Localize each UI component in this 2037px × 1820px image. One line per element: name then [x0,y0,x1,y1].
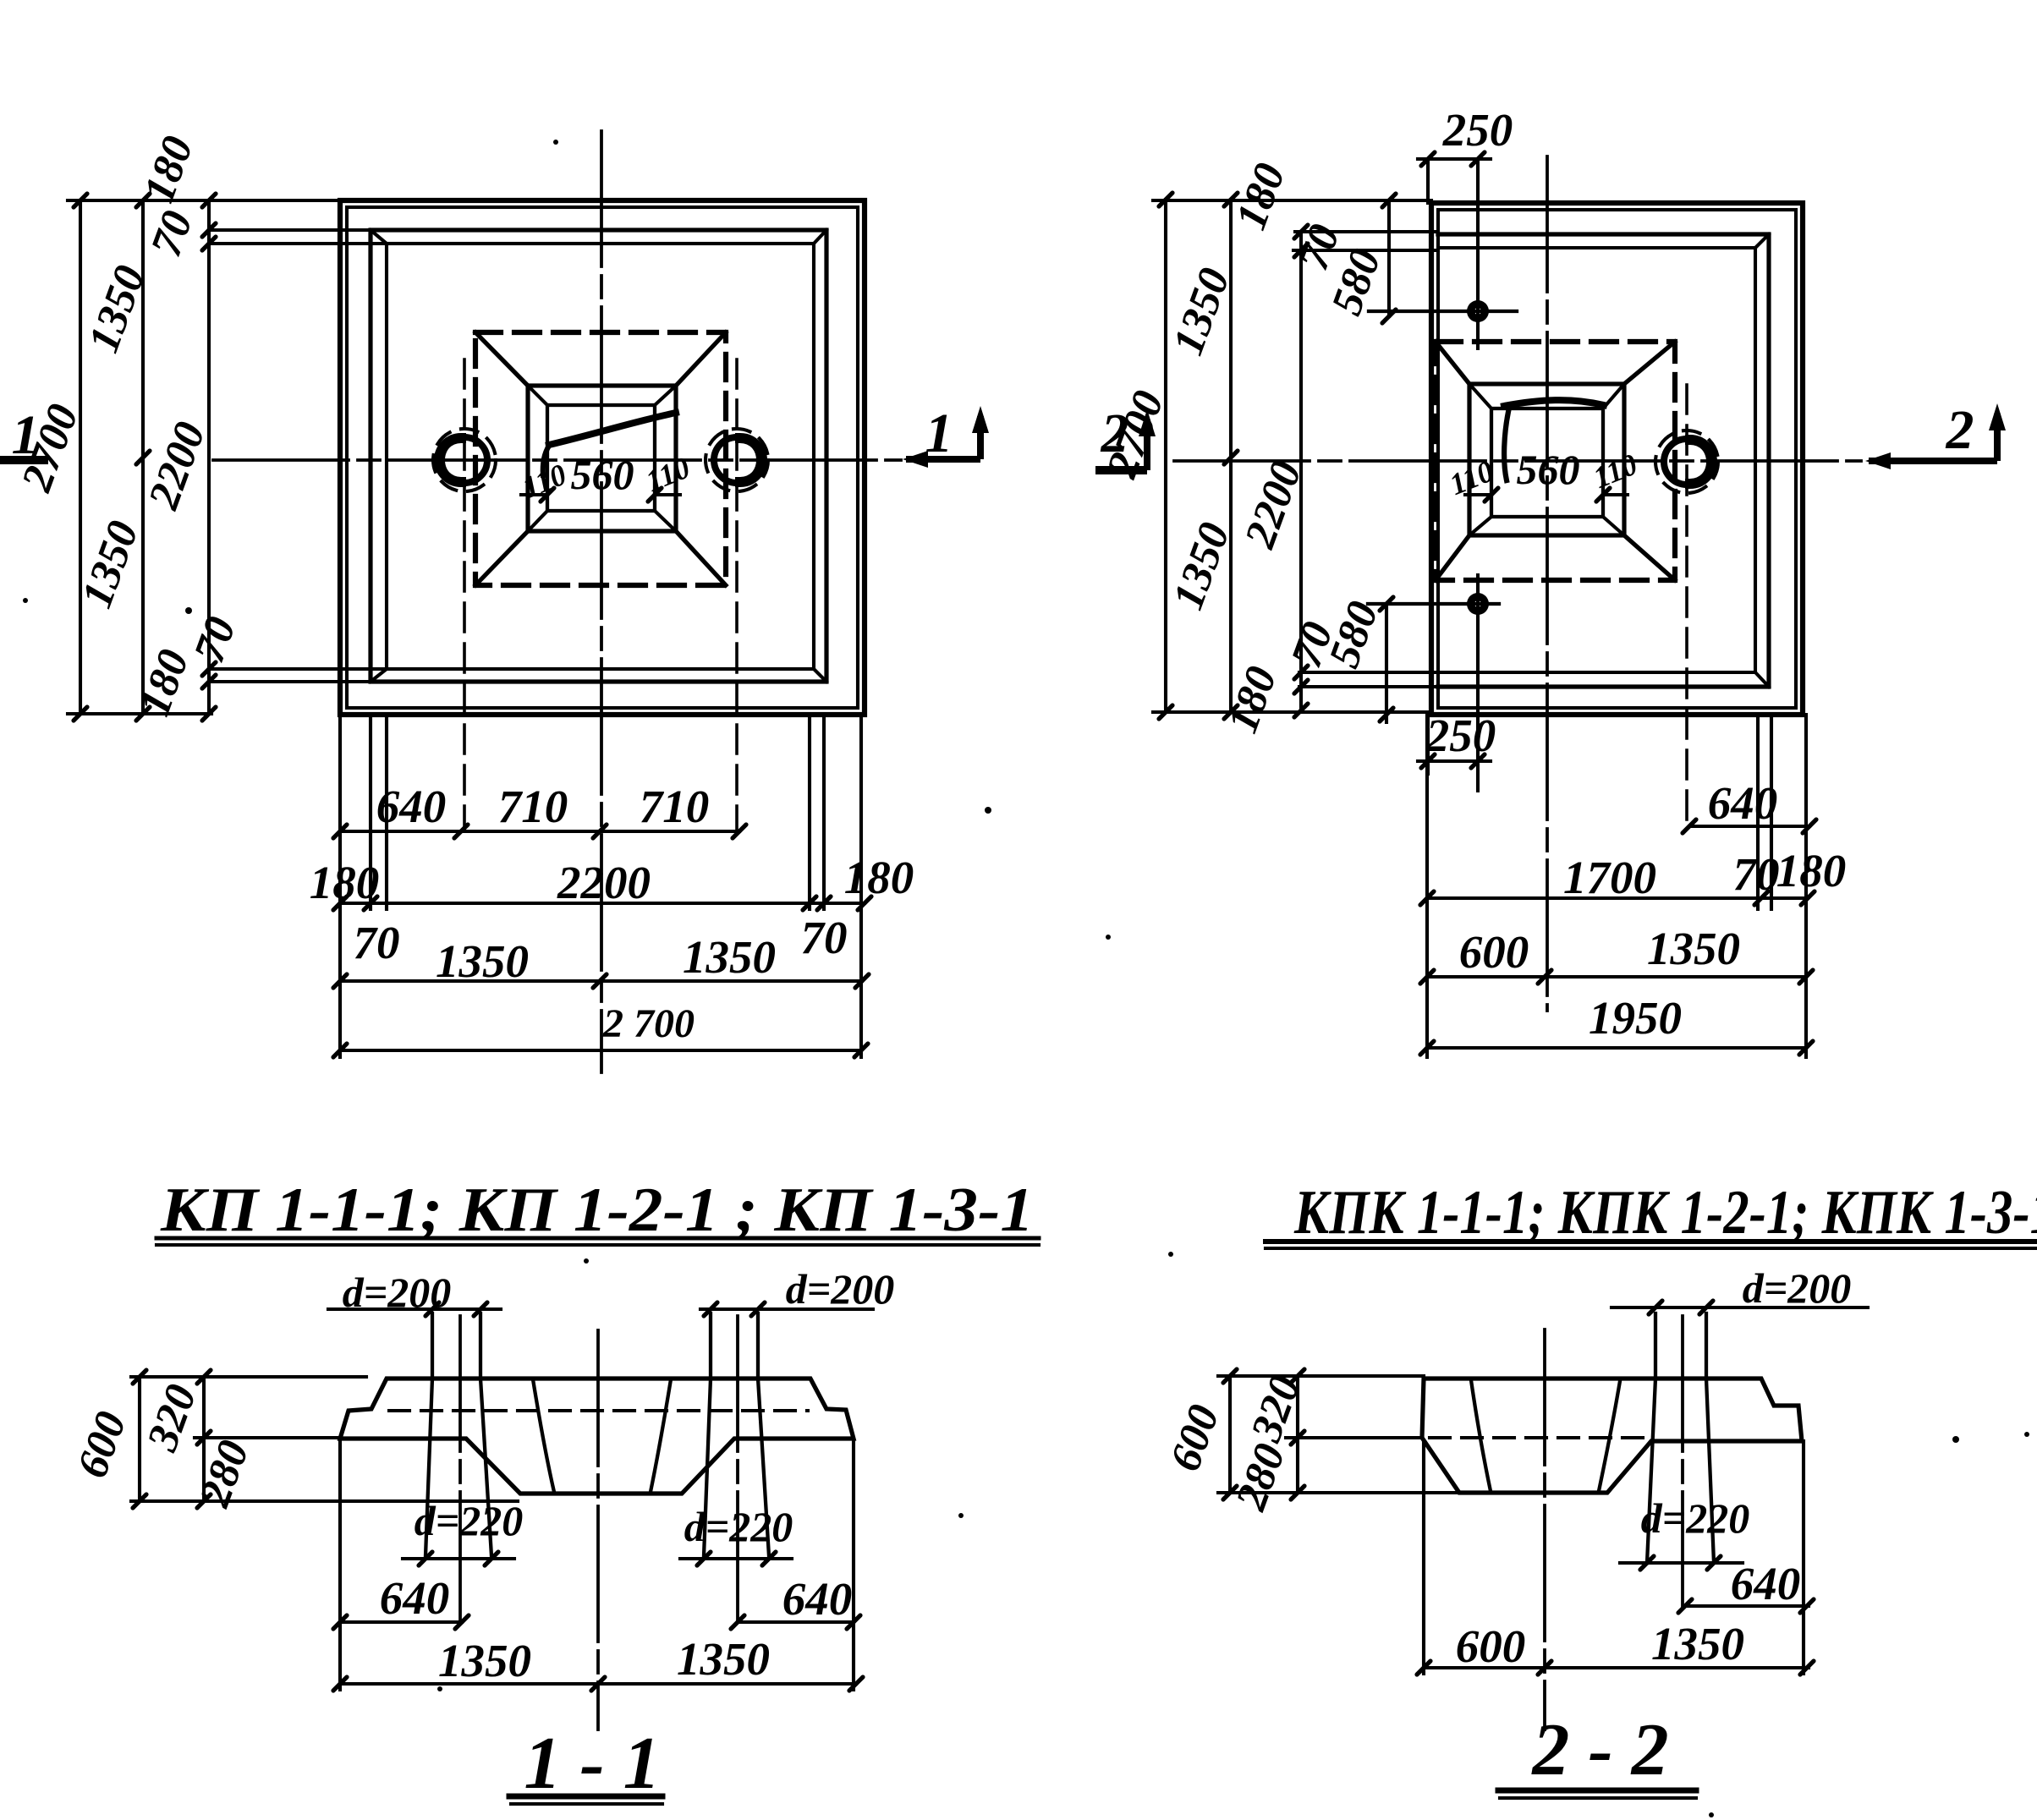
svg-text:70: 70 [1733,848,1780,900]
svg-text:600: 600 [1456,1620,1526,1672]
svg-text:560: 560 [571,451,634,498]
svg-text:2: 2 [1101,403,1129,464]
svg-text:180: 180 [310,857,380,908]
svg-text:250: 250 [1425,710,1496,761]
svg-text:710: 710 [498,781,568,832]
svg-text:710: 710 [640,781,710,832]
svg-text:d=220: d=220 [415,1497,524,1544]
svg-text:d=220: d=220 [1641,1494,1750,1542]
svg-text:1 - 1: 1 - 1 [524,1723,660,1805]
svg-text:600: 600 [1459,926,1529,978]
svg-text:640: 640 [1708,777,1778,829]
svg-text:1700: 1700 [1563,852,1656,903]
svg-text:70: 70 [801,912,848,963]
svg-text:640: 640 [380,1572,450,1624]
svg-text:1350: 1350 [683,931,776,983]
svg-text:1350: 1350 [1647,923,1740,974]
svg-text:250: 250 [1442,104,1513,156]
svg-text:640: 640 [376,781,447,832]
svg-text:КП 1-1-1; КП 1-2-1 ; КП 1-3-1: КП 1-1-1; КП 1-2-1 ; КП 1-3-1 [160,1176,1034,1245]
svg-text:560: 560 [1517,446,1580,493]
svg-text:d=200: d=200 [343,1269,452,1316]
svg-text:1350: 1350 [1651,1618,1744,1669]
svg-text:640: 640 [1731,1558,1801,1609]
svg-text:1350: 1350 [438,1635,531,1686]
svg-text:640: 640 [782,1573,853,1625]
svg-text:1: 1 [925,403,953,464]
svg-text:1950: 1950 [1589,992,1682,1044]
svg-text:180: 180 [844,852,914,903]
svg-text:70: 70 [354,917,400,968]
svg-text:180: 180 [1776,845,1847,896]
svg-text:d=200: d=200 [786,1265,895,1313]
svg-text:2 700: 2 700 [602,1001,695,1046]
svg-text:1350: 1350 [677,1633,770,1685]
svg-text:d=220: d=220 [684,1503,793,1550]
svg-text:КПК 1-1-1; КПК 1-2-1; КПК 1-3-: КПК 1-1-1; КПК 1-2-1; КПК 1-3-1 [1293,1178,2037,1247]
svg-text:1350: 1350 [436,935,529,987]
svg-text:2 - 2: 2 - 2 [1530,1709,1668,1791]
svg-text:2: 2 [1946,399,1974,461]
svg-text:1: 1 [12,404,40,466]
svg-text:2200: 2200 [557,857,651,908]
svg-text:d=200: d=200 [1743,1264,1852,1312]
